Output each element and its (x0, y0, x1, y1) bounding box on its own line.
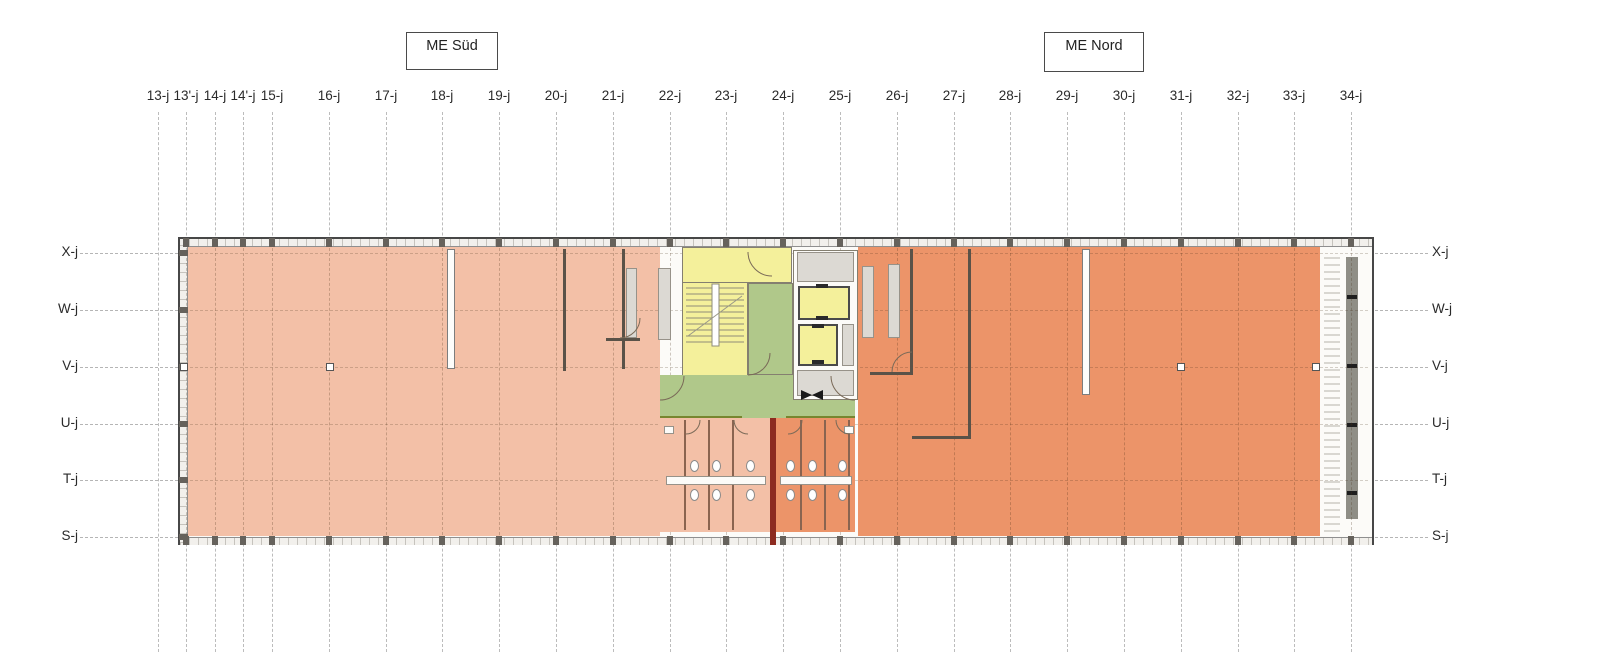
facade-column (553, 536, 559, 545)
grid-row-label-left: W-j (36, 301, 78, 319)
facade-column (610, 238, 616, 247)
interior-grid-line (329, 248, 330, 535)
wc-fixture (838, 489, 847, 501)
grid-node (326, 363, 334, 371)
facade-column (179, 477, 188, 483)
facade-column (439, 536, 445, 545)
facade-column (1235, 238, 1241, 247)
facade-column (723, 536, 729, 545)
grid-column-label: 22-j (659, 88, 682, 106)
facade-column (951, 536, 957, 545)
facade-column (183, 238, 189, 247)
grid-column-label: 23-j (715, 88, 738, 106)
interior-wall (606, 338, 640, 341)
facade-column (894, 536, 900, 545)
facade-column (1235, 536, 1241, 545)
grid-row-label-left: V-j (36, 358, 78, 376)
bar-tick (1347, 491, 1357, 495)
wc-stall-wall (848, 420, 850, 530)
facade-column (269, 238, 275, 247)
interior-grid-line (954, 248, 955, 535)
facade-column (1064, 536, 1070, 545)
grid-node (1177, 363, 1185, 371)
facade-column (439, 238, 445, 247)
facade-column (1291, 536, 1297, 545)
facade-column (780, 238, 786, 247)
grid-column-label: 13-j (147, 88, 170, 106)
wc-fixture (690, 489, 699, 501)
wc-fixture (712, 460, 721, 472)
facade-column (1007, 238, 1013, 247)
interior-wall (870, 372, 913, 375)
facade-column (240, 238, 246, 247)
interior-wall (910, 249, 913, 375)
facade-column (1064, 238, 1070, 247)
grid-column-label: 29-j (1056, 88, 1079, 106)
facade-band-top (180, 239, 1372, 247)
grid-row-label-right: X-j (1432, 244, 1474, 262)
grid-column-label: 28-j (999, 88, 1022, 106)
grid-row-label-right: V-j (1432, 358, 1474, 376)
interior-grid-line (386, 248, 387, 535)
facade-column (553, 238, 559, 247)
shaft-rect (626, 268, 637, 338)
facade-band-bottom (180, 537, 1372, 545)
grid-row-label-left: X-j (36, 244, 78, 262)
facade-column (212, 238, 218, 247)
grid-column-label: 34-j (1340, 88, 1363, 106)
wc-fixture (746, 460, 755, 472)
end-strip-hatch (1324, 252, 1340, 532)
grid-column-label: 21-j (602, 88, 625, 106)
facade-column (240, 536, 246, 545)
facade-column (179, 307, 188, 313)
grid-column-label: 27-j (943, 88, 966, 106)
bar-tick (1347, 295, 1357, 299)
interior-grid-line (1351, 248, 1352, 535)
interior-grid-line (215, 248, 216, 535)
facade-column (383, 536, 389, 545)
grid-row-label-right: W-j (1432, 301, 1474, 319)
wc-sink (664, 426, 674, 434)
elevator-shaft-side (842, 324, 854, 366)
interior-wall (563, 249, 566, 371)
grid-column-label: 14-j (204, 88, 227, 106)
wc-block-nord (776, 418, 855, 532)
facade-column (951, 238, 957, 247)
grid-row-label-left: S-j (36, 528, 78, 546)
grid-node (1312, 363, 1320, 371)
grid-column-label: 15-j (261, 88, 284, 106)
partition-wall (447, 249, 455, 369)
wc-stall-wall (800, 420, 802, 530)
interior-wall (622, 249, 625, 369)
facade-column (1007, 536, 1013, 545)
shaft-rect (658, 268, 671, 340)
facade-column (1178, 238, 1184, 247)
grid-column-line (158, 112, 159, 652)
facade-column (723, 238, 729, 247)
interior-grid-line (613, 248, 614, 535)
fire-wall (770, 418, 776, 545)
wc-counter (666, 476, 766, 485)
interior-grid-line (272, 248, 273, 535)
floor-plan-canvas: ME Süd ME Nord 13-j13'-j14-j14'-j15-j16-… (0, 0, 1600, 668)
wc-stall-wall (824, 420, 826, 530)
grid-column-label: 20-j (545, 88, 568, 106)
wc-fixture (690, 460, 699, 472)
facade-column (667, 238, 673, 247)
interior-grid-line (1124, 248, 1125, 535)
grid-node (180, 363, 188, 371)
grid-row-label-right: T-j (1432, 471, 1474, 489)
grid-row-label-right: S-j (1432, 528, 1474, 546)
facade-column (179, 421, 188, 427)
grid-column-label: 32-j (1227, 88, 1250, 106)
facade-column (894, 238, 900, 247)
facade-column (212, 536, 218, 545)
grid-column-label: 24-j (772, 88, 795, 106)
facade-column (667, 536, 673, 545)
wc-stall-wall (708, 420, 710, 530)
elevator-machine-room (797, 252, 854, 282)
wc-fixture (808, 489, 817, 501)
facade-column (837, 238, 843, 247)
facade-column (1348, 536, 1354, 545)
facade-column (1348, 238, 1354, 247)
label-box-me-sued: ME Süd (406, 32, 498, 70)
facade-column (269, 536, 275, 545)
facade-column (179, 534, 188, 540)
interior-grid-line (186, 248, 187, 535)
facade-column (383, 238, 389, 247)
wc-fixture (808, 460, 817, 472)
grid-column-label: 31-j (1170, 88, 1193, 106)
me-nord-label: ME Nord (1065, 38, 1122, 54)
zone-me-sued (188, 247, 660, 536)
facade-column (1121, 536, 1127, 545)
elevator-car-2 (798, 324, 838, 366)
grid-column-label: 16-j (318, 88, 341, 106)
label-box-me-nord: ME Nord (1044, 32, 1144, 72)
grid-column-label: 30-j (1113, 88, 1136, 106)
grid-column-label: 33-j (1283, 88, 1306, 106)
facade-column (326, 536, 332, 545)
wc-stall-wall (684, 420, 686, 530)
facade-column (179, 250, 188, 256)
grid-column-label: 14'-j (230, 88, 255, 106)
lobby-upper (748, 283, 793, 375)
grid-column-label: 19-j (488, 88, 511, 106)
shaft-rect (862, 266, 874, 338)
interior-wall (968, 249, 971, 439)
grid-row-label-right: U-j (1432, 415, 1474, 433)
wc-fixture (786, 489, 795, 501)
elevator-car-1 (798, 286, 850, 320)
interior-grid-line (1181, 248, 1182, 535)
interior-grid-line (1010, 248, 1011, 535)
facade-column (780, 536, 786, 545)
interior-grid-line (1294, 248, 1295, 535)
me-sued-label: ME Süd (426, 38, 478, 54)
grid-column-label: 26-j (886, 88, 909, 106)
wc-fixture (712, 489, 721, 501)
wc-fixture (746, 489, 755, 501)
interior-grid-line (556, 248, 557, 535)
interior-grid-line (243, 248, 244, 535)
grid-column-label: 25-j (829, 88, 852, 106)
grid-column-label: 13'-j (173, 88, 198, 106)
interior-grid-line (499, 248, 500, 535)
partition-wall (1082, 249, 1090, 395)
facade-column (837, 536, 843, 545)
wc-stall-wall (732, 420, 734, 530)
grid-row-label-left: U-j (36, 415, 78, 433)
wc-sink (844, 426, 854, 434)
wc-block-sued (660, 418, 770, 532)
facade-column (1121, 238, 1127, 247)
facade-column (496, 536, 502, 545)
grid-column-label: 17-j (375, 88, 398, 106)
interior-wall (912, 436, 970, 439)
facade-column (326, 238, 332, 247)
grid-column-label: 18-j (431, 88, 454, 106)
facade-column (496, 238, 502, 247)
interior-grid-line (1067, 248, 1068, 535)
shaft-rect (888, 264, 900, 338)
grid-row-label-left: T-j (36, 471, 78, 489)
stair-top-landing (682, 247, 792, 283)
facade-column (1178, 536, 1184, 545)
elevator-lobby-room (797, 370, 854, 396)
interior-grid-line (442, 248, 443, 535)
wc-fixture (838, 460, 847, 472)
facade-column (1291, 238, 1297, 247)
facade-column (610, 536, 616, 545)
interior-grid-line (1238, 248, 1239, 535)
wc-fixture (786, 460, 795, 472)
wc-counter (780, 476, 852, 485)
